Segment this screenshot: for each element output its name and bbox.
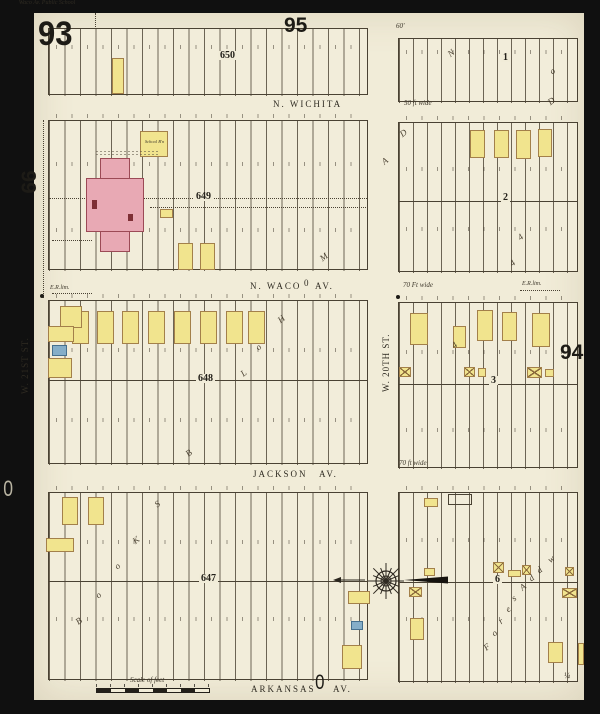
sanborn-map-sheet: 93 95 99 94 0 0 ¼ N. WICHITA 50 ft wide … bbox=[0, 0, 600, 714]
compass-and-arrows-layer bbox=[0, 0, 600, 714]
